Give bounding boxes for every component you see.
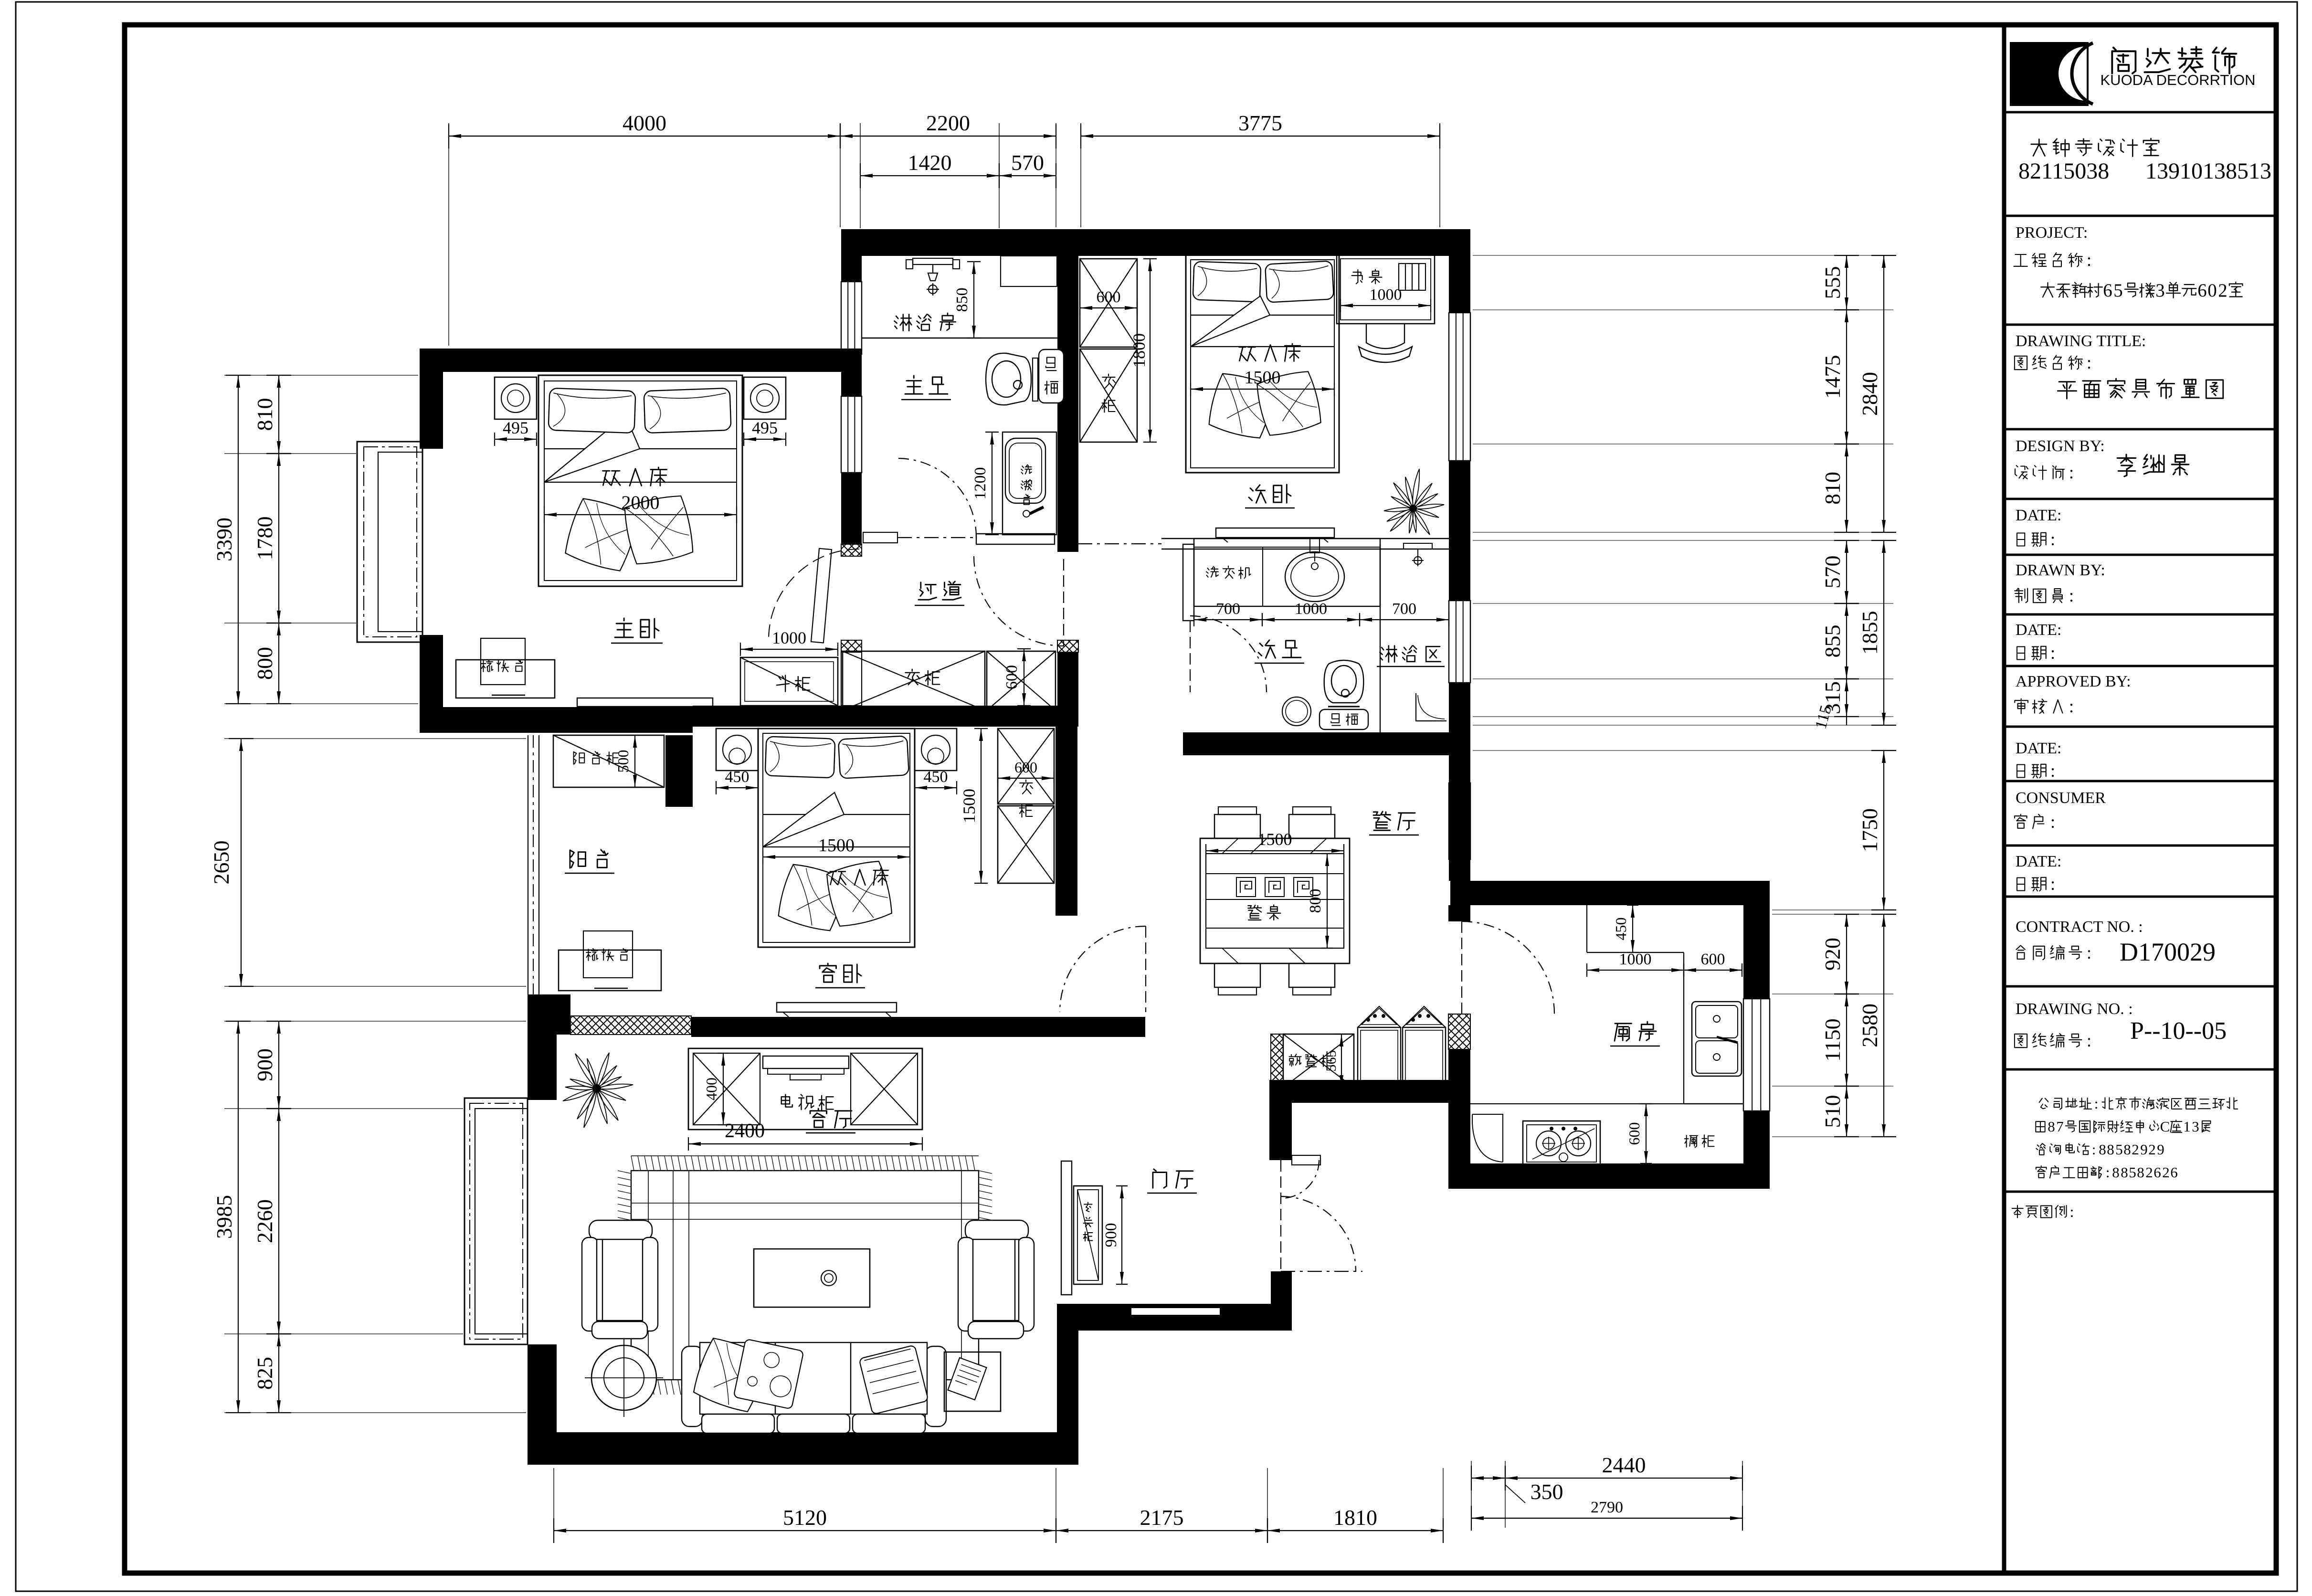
svg-text:800: 800 bbox=[1307, 889, 1324, 913]
svg-text:4000: 4000 bbox=[623, 111, 666, 135]
svg-text::: : bbox=[2050, 875, 2055, 894]
svg-text:600: 600 bbox=[1701, 951, 1725, 968]
svg-text:DRAWING TITLE:: DRAWING TITLE: bbox=[2016, 332, 2146, 350]
svg-text:565: 565 bbox=[1323, 1050, 1339, 1072]
svg-text:8: 8 bbox=[2123, 1141, 2131, 1158]
svg-text:450: 450 bbox=[1612, 918, 1629, 941]
svg-text:8: 8 bbox=[2137, 1164, 2144, 1181]
svg-text:900: 900 bbox=[253, 1048, 277, 1081]
svg-text:2000: 2000 bbox=[622, 492, 660, 513]
svg-text:2: 2 bbox=[2132, 1141, 2139, 1158]
svg-text:5: 5 bbox=[2113, 280, 2123, 301]
svg-text:1750: 1750 bbox=[1858, 808, 1882, 852]
svg-text:810: 810 bbox=[1820, 472, 1845, 505]
svg-text:1000: 1000 bbox=[1295, 600, 1327, 618]
svg-text:3: 3 bbox=[2155, 280, 2165, 301]
svg-text:5120: 5120 bbox=[783, 1505, 827, 1530]
svg-text:DATE:: DATE: bbox=[2016, 740, 2061, 757]
svg-text::: : bbox=[2070, 1203, 2074, 1220]
svg-text:9: 9 bbox=[2157, 1141, 2164, 1158]
svg-text:1800: 1800 bbox=[1130, 333, 1149, 368]
svg-text:82115038: 82115038 bbox=[2018, 159, 2109, 184]
svg-text:1475: 1475 bbox=[1820, 355, 1845, 399]
svg-text:3390: 3390 bbox=[212, 518, 236, 561]
svg-text:555: 555 bbox=[1820, 266, 1845, 299]
svg-text:8: 8 bbox=[2112, 1164, 2120, 1181]
svg-text:2: 2 bbox=[2145, 1164, 2153, 1181]
svg-text:6: 6 bbox=[2197, 280, 2207, 301]
svg-text:1000: 1000 bbox=[772, 628, 806, 647]
svg-text:5: 5 bbox=[2115, 1141, 2123, 1158]
svg-text:1500: 1500 bbox=[818, 835, 855, 856]
svg-text:2175: 2175 bbox=[1140, 1505, 1184, 1530]
svg-text:600: 600 bbox=[1014, 759, 1037, 776]
svg-text:495: 495 bbox=[752, 418, 778, 437]
svg-text::: : bbox=[2087, 353, 2091, 373]
svg-text:920: 920 bbox=[1820, 938, 1845, 971]
svg-text:400: 400 bbox=[703, 1078, 720, 1100]
svg-text::: : bbox=[2050, 530, 2055, 550]
svg-text:3985: 3985 bbox=[212, 1195, 236, 1239]
svg-text:KUODA DECORRTION: KUODA DECORRTION bbox=[2101, 72, 2256, 88]
svg-text:3: 3 bbox=[2192, 1118, 2199, 1135]
svg-text:810: 810 bbox=[253, 398, 277, 431]
svg-text:2790: 2790 bbox=[1591, 1499, 1623, 1516]
svg-text:8: 8 bbox=[2099, 1141, 2106, 1158]
svg-text:6: 6 bbox=[2170, 1164, 2178, 1181]
svg-text:C: C bbox=[2160, 1118, 2170, 1135]
svg-text:DATE:: DATE: bbox=[2016, 621, 2061, 639]
svg-text:855: 855 bbox=[1820, 625, 1845, 658]
svg-text:2260: 2260 bbox=[253, 1199, 277, 1243]
svg-text:1000: 1000 bbox=[1619, 951, 1652, 968]
svg-text:DESIGN BY:: DESIGN BY: bbox=[2016, 437, 2105, 455]
svg-text:DATE:: DATE: bbox=[2016, 507, 2061, 524]
svg-text:700: 700 bbox=[1392, 600, 1416, 618]
svg-text:1810: 1810 bbox=[1333, 1505, 1377, 1530]
svg-text:1500: 1500 bbox=[1258, 830, 1292, 849]
svg-text:0: 0 bbox=[2207, 280, 2217, 301]
svg-text::: : bbox=[2087, 1031, 2091, 1051]
svg-text:495: 495 bbox=[503, 418, 528, 437]
svg-text:8: 8 bbox=[2107, 1141, 2114, 1158]
svg-text:PROJECT:: PROJECT: bbox=[2016, 224, 2088, 242]
svg-text::: : bbox=[2069, 463, 2074, 483]
svg-text:600: 600 bbox=[1626, 1122, 1643, 1145]
svg-text:450: 450 bbox=[725, 768, 750, 786]
svg-text:1855: 1855 bbox=[1858, 611, 1882, 655]
svg-text:DRAWN BY:: DRAWN BY: bbox=[2016, 561, 2105, 579]
svg-text:1420: 1420 bbox=[908, 150, 952, 175]
svg-text:CONSUMER: CONSUMER bbox=[2016, 789, 2106, 807]
svg-text:570: 570 bbox=[1820, 556, 1845, 589]
svg-text:5: 5 bbox=[2129, 1164, 2136, 1181]
svg-text::: : bbox=[2050, 761, 2055, 781]
svg-text:APPROVED BY:: APPROVED BY: bbox=[2016, 673, 2131, 690]
svg-text:570: 570 bbox=[1011, 150, 1044, 175]
svg-text:8: 8 bbox=[2121, 1164, 2128, 1181]
svg-text:D170029: D170029 bbox=[2120, 938, 2216, 966]
svg-text:1000: 1000 bbox=[1370, 286, 1402, 304]
svg-text:800: 800 bbox=[253, 647, 277, 680]
svg-text:900: 900 bbox=[1102, 1223, 1120, 1247]
svg-text::: : bbox=[2092, 1141, 2096, 1158]
svg-text:2440: 2440 bbox=[1602, 1453, 1646, 1477]
svg-text:2: 2 bbox=[2148, 1141, 2156, 1158]
svg-text:1780: 1780 bbox=[253, 517, 277, 560]
svg-text:350: 350 bbox=[1531, 1480, 1563, 1504]
svg-text:3775: 3775 bbox=[1238, 111, 1282, 135]
svg-text::: : bbox=[2087, 251, 2091, 270]
svg-text:1200: 1200 bbox=[971, 467, 989, 500]
svg-text:2400: 2400 bbox=[725, 1120, 765, 1142]
svg-text:9: 9 bbox=[2140, 1141, 2148, 1158]
svg-text:2650: 2650 bbox=[209, 841, 233, 885]
svg-text::: : bbox=[2050, 644, 2055, 663]
svg-text::: : bbox=[2050, 813, 2055, 832]
svg-text:500: 500 bbox=[614, 750, 632, 773]
svg-text::: : bbox=[2094, 1095, 2099, 1112]
svg-text:6: 6 bbox=[2103, 280, 2112, 301]
svg-text:8: 8 bbox=[2048, 1118, 2055, 1135]
svg-text:2580: 2580 bbox=[1858, 1004, 1882, 1047]
svg-text:2840: 2840 bbox=[1858, 372, 1882, 416]
svg-text:1150: 1150 bbox=[1820, 1018, 1845, 1061]
svg-text:DRAWING NO. :: DRAWING NO. : bbox=[2016, 1000, 2133, 1018]
svg-text:2: 2 bbox=[2218, 280, 2228, 301]
svg-text:1: 1 bbox=[2183, 1118, 2191, 1135]
svg-text:850: 850 bbox=[953, 288, 971, 312]
svg-text:CONTRACT NO. :: CONTRACT NO. : bbox=[2016, 918, 2143, 936]
svg-text:7: 7 bbox=[2056, 1118, 2064, 1135]
svg-text::: : bbox=[2087, 943, 2091, 963]
svg-text:825: 825 bbox=[253, 1357, 277, 1390]
svg-text:2200: 2200 bbox=[926, 111, 970, 135]
svg-text:P--10--05: P--10--05 bbox=[2130, 1017, 2227, 1045]
svg-text::: : bbox=[2106, 1164, 2110, 1181]
svg-text:600: 600 bbox=[1003, 665, 1021, 689]
svg-text:700: 700 bbox=[1216, 600, 1240, 618]
svg-text:13910138513: 13910138513 bbox=[2145, 159, 2271, 184]
svg-text::: : bbox=[2069, 586, 2074, 606]
svg-text:1500: 1500 bbox=[960, 789, 979, 823]
svg-text:1500: 1500 bbox=[1245, 368, 1281, 388]
svg-text:6: 6 bbox=[2154, 1164, 2161, 1181]
svg-text:600: 600 bbox=[1097, 288, 1121, 306]
svg-text::: : bbox=[2069, 697, 2074, 717]
svg-text:450: 450 bbox=[924, 768, 948, 786]
svg-text:510: 510 bbox=[1820, 1095, 1845, 1128]
svg-text:DATE:: DATE: bbox=[2016, 853, 2061, 870]
svg-text:2: 2 bbox=[2162, 1164, 2170, 1181]
